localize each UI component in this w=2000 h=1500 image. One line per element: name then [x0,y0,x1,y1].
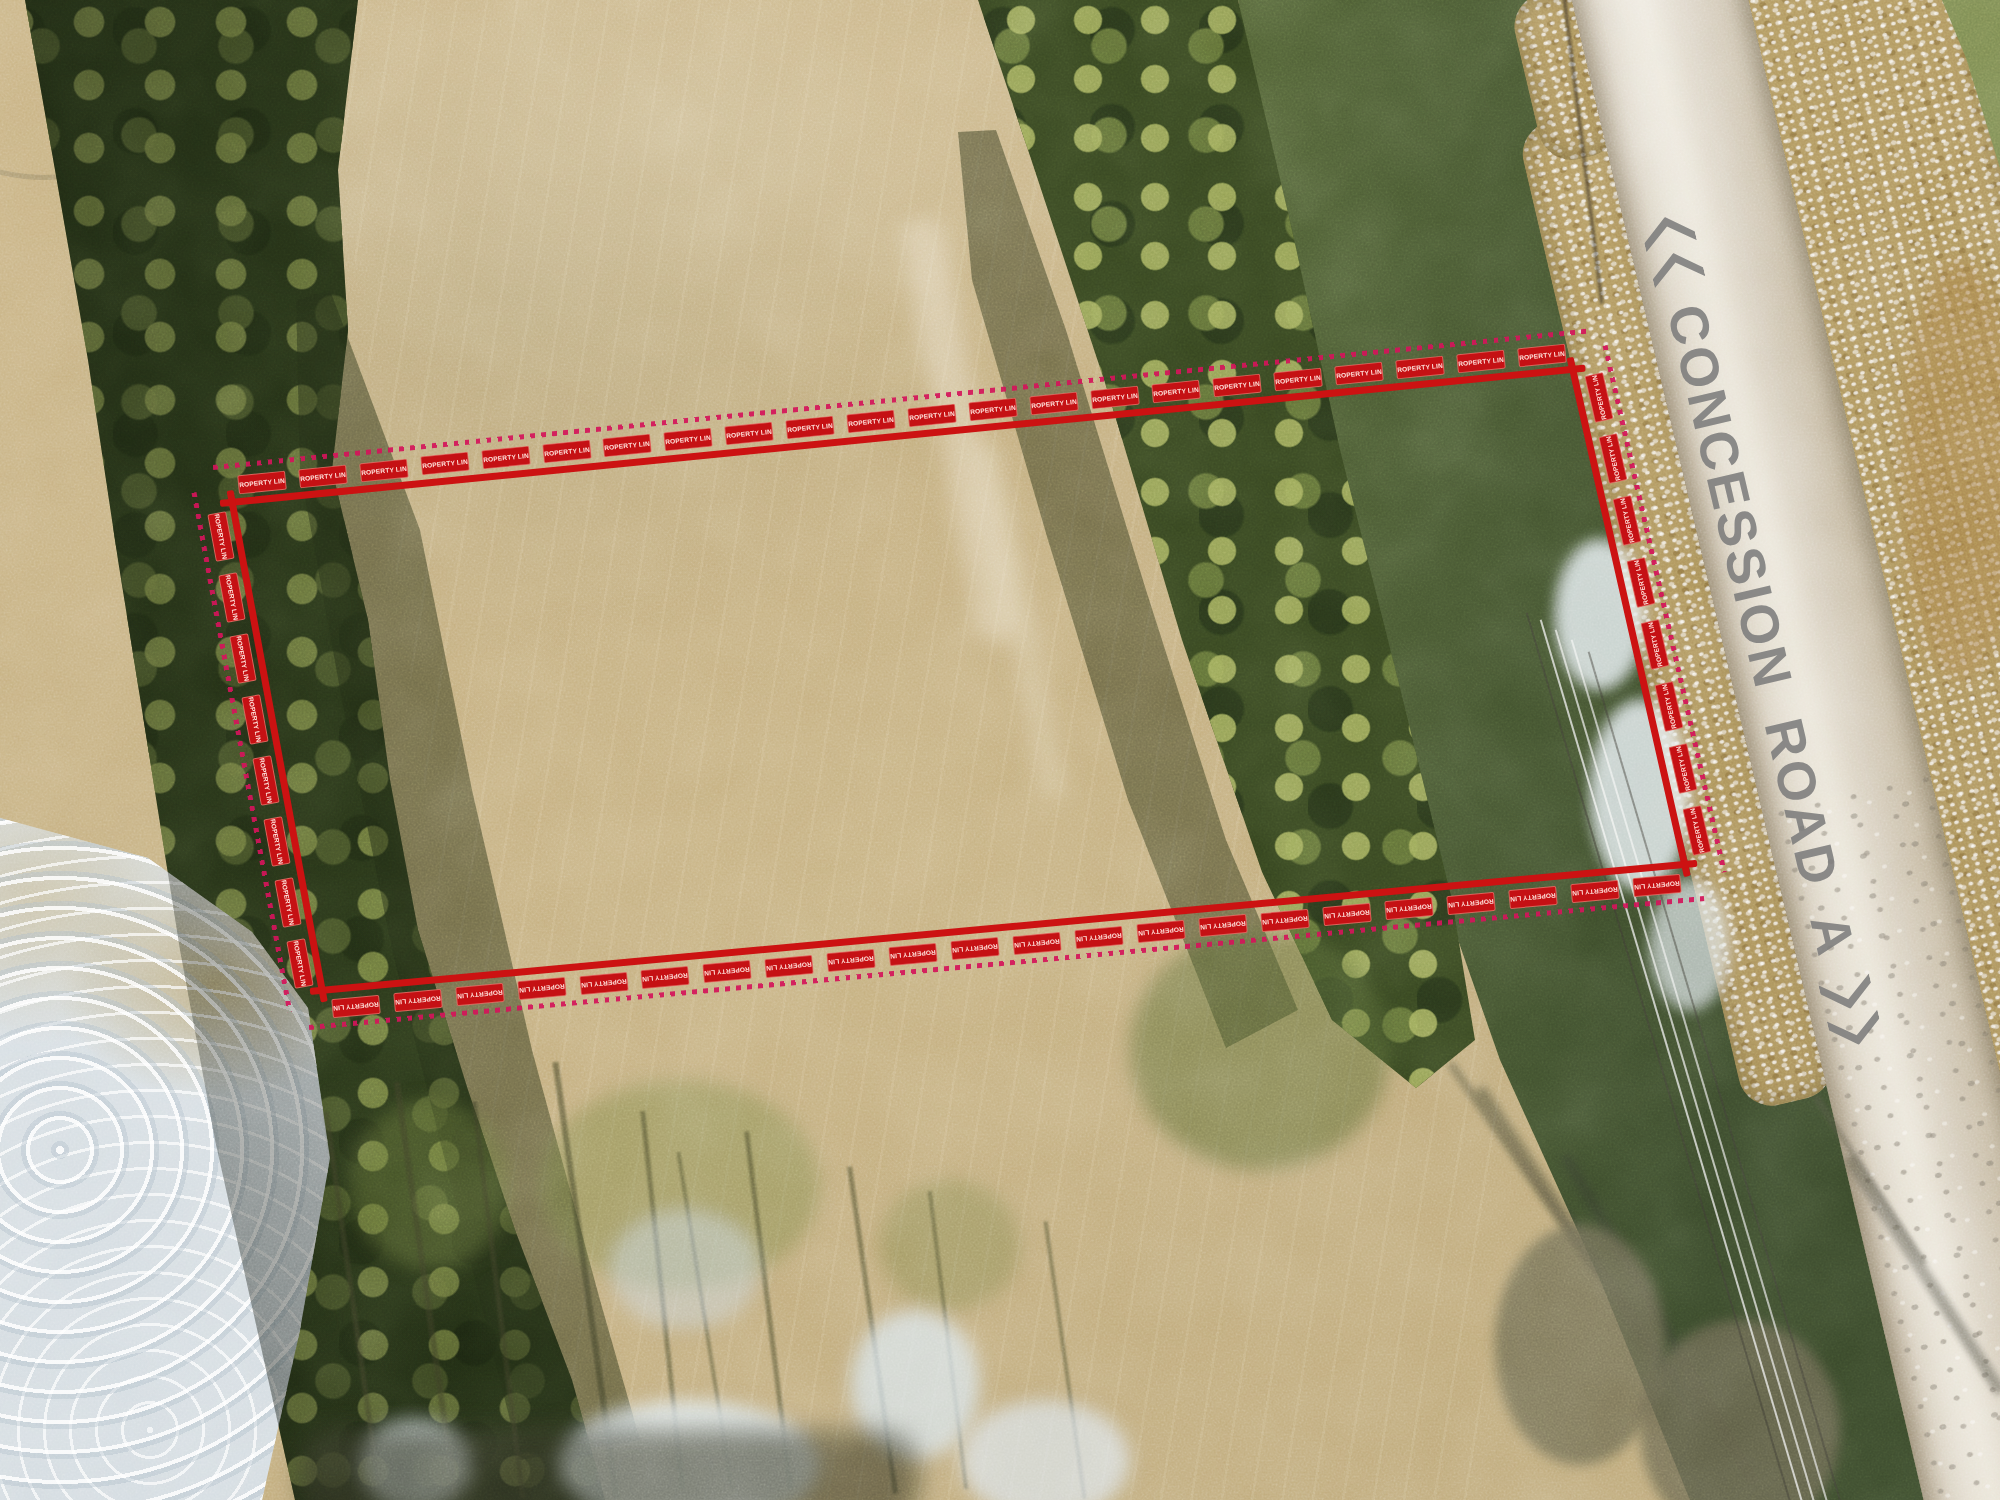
property-line-badge: PROPERTY LINE [1626,557,1655,608]
property-line-badge: PROPERTY LINE [703,960,753,983]
property-line-badge: PROPERTY LINE [331,994,381,1017]
property-line-badge: PROPERTY LINE [455,983,505,1006]
property-line-badge: PROPERTY LINE [785,416,835,440]
property-boundary-line-bottom [310,859,1698,994]
property-line-badge: PROPERTY LINE [359,458,409,482]
aerial-photo: PROPERTY LINEPROPERTY LINEPROPERTY LINEP… [0,0,2000,1500]
property-line-badge: PROPERTY LINE [1273,367,1323,391]
property-line-badge: PROPERTY LINE [1151,380,1201,404]
property-line-badge: PROPERTY LINE [664,428,714,452]
property-line-badge: PROPERTY LINE [252,755,279,806]
property-line-badge: PROPERTY LINE [1198,914,1248,937]
property-line-badge: PROPERTY LINE [1029,392,1079,416]
property-line-badge: PROPERTY LINE [1508,886,1558,909]
property-line-badge: PROPERTY LINE [603,434,653,458]
property-line-badge: PROPERTY LINE [207,511,234,562]
property-line-badge: PROPERTY LINE [286,938,313,989]
property-line-badge: PROPERTY LINE [724,422,774,446]
property-line-badge: PROPERTY LINE [1640,619,1669,670]
property-line-badge: PROPERTY LINE [641,966,691,989]
property-line-badge: PROPERTY LINE [1682,805,1711,856]
property-line-badge: PROPERTY LINE [1212,373,1262,397]
property-boundary-dots-bottom [309,896,1704,1030]
property-line-badge: PROPERTY LINE [1570,880,1620,903]
property-line-badge: PROPERTY LINE [1612,495,1641,546]
property-line-badge: PROPERTY LINE [241,694,268,745]
property-line-badge: PROPERTY LINE [950,937,1000,960]
property-line-badge: PROPERTY LINE [1598,433,1627,484]
property-line-badge: PROPERTY LINE [1384,897,1434,920]
property-line-badge: PROPERTY LINE [218,572,245,623]
property-boundary-line-top [220,364,1586,506]
property-boundary-overlay: PROPERTY LINEPROPERTY LINEPROPERTY LINEP… [0,0,2000,1500]
property-line-badge: PROPERTY LINE [1654,681,1683,732]
property-line-badge: PROPERTY LINE [1260,909,1310,932]
property-line-badge: PROPERTY LINE [1090,386,1140,410]
property-line-badge: PROPERTY LINE [1632,874,1682,897]
property-line-badge: PROPERTY LINE [1456,349,1506,373]
property-line-badge: PROPERTY LINE [237,470,287,494]
property-line-badge: PROPERTY LINE [517,977,567,1000]
property-boundary-dots-top [212,329,1585,470]
property-line-badge: PROPERTY LINE [420,452,470,476]
property-line-badge: PROPERTY LINE [275,877,302,928]
property-line-badge: PROPERTY LINE [263,816,290,867]
property-line-badge: PROPERTY LINE [1136,920,1186,943]
property-line-badge: PROPERTY LINE [968,398,1018,422]
property-line-badge: PROPERTY LINE [1584,371,1613,422]
property-line-badge: PROPERTY LINE [846,410,896,434]
property-boundary-line-right [1567,357,1691,877]
property-line-badge: PROPERTY LINE [827,949,877,972]
property-line-badge: PROPERTY LINE [1668,743,1697,794]
property-line-badge: PROPERTY LINE [1322,903,1372,926]
property-line-badge: PROPERTY LINE [1074,926,1124,949]
property-line-badge: PROPERTY LINE [298,464,348,488]
property-line-badge: PROPERTY LINE [230,633,257,684]
property-line-badge: PROPERTY LINE [481,446,531,470]
property-line-badge: PROPERTY LINE [765,954,815,977]
property-line-badge: PROPERTY LINE [1334,361,1384,385]
property-line-badge: PROPERTY LINE [1395,355,1445,379]
property-line-badge: PROPERTY LINE [579,972,629,995]
property-line-badge: PROPERTY LINE [393,989,443,1012]
property-line-badge: PROPERTY LINE [542,440,592,464]
property-line-badge: PROPERTY LINE [888,943,938,966]
property-line-badge: PROPERTY LINE [1446,891,1496,914]
property-line-badge: PROPERTY LINE [1012,931,1062,954]
property-line-badge: PROPERTY LINE [907,404,957,428]
property-line-badge: PROPERTY LINE [1517,343,1567,367]
